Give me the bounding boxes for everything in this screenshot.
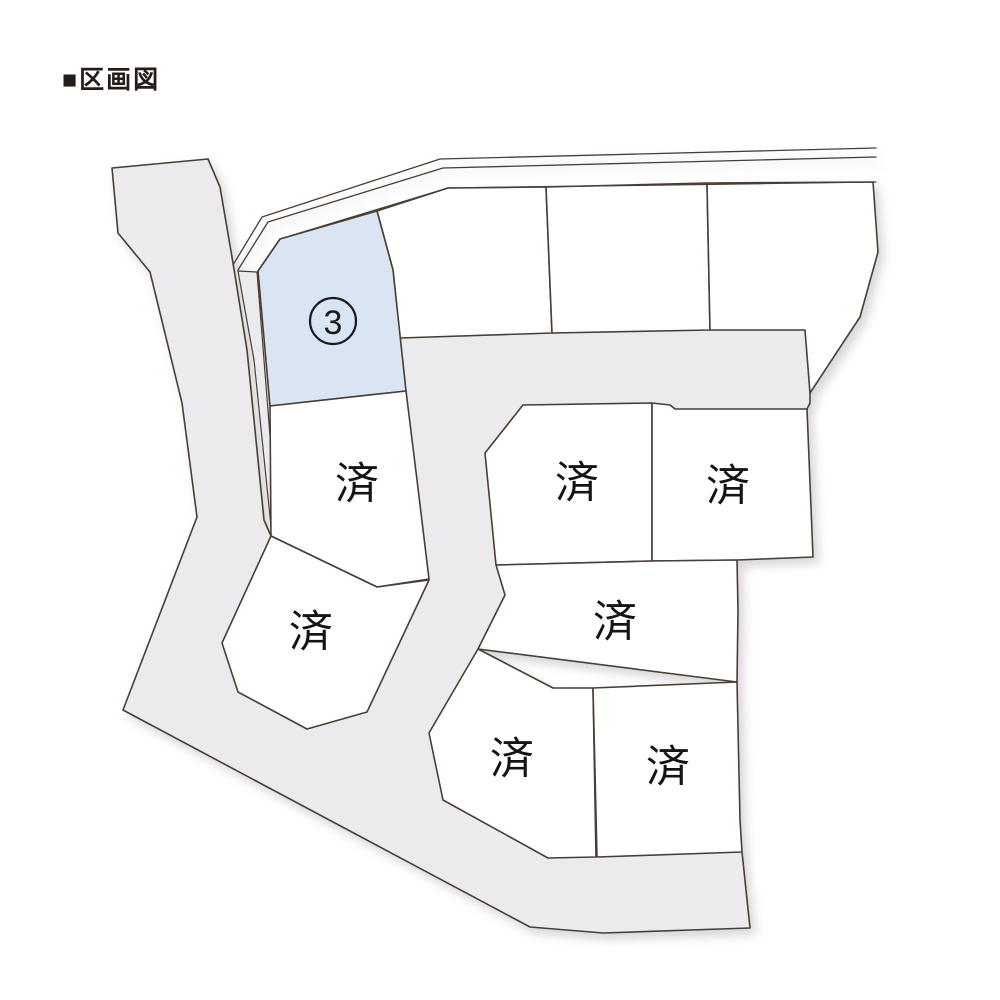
plot-vacant-top-left xyxy=(377,187,552,338)
sold-label-7: 済 xyxy=(646,743,690,792)
plot-vacant-top-middle xyxy=(546,183,710,333)
plot-map: 3 済 済 済 済 済 済 済 xyxy=(0,0,1000,1000)
sold-label-4: 済 xyxy=(706,462,750,511)
sold-label-3: 済 xyxy=(555,459,599,508)
sold-label-6: 済 xyxy=(490,735,534,784)
lot-map-page: ■区画図 xyxy=(0,0,1000,1000)
sold-label-2: 済 xyxy=(289,608,333,657)
sold-label-1: 済 xyxy=(335,460,379,509)
plot-3-number: 3 xyxy=(324,304,343,342)
sold-label-5: 済 xyxy=(593,598,637,647)
